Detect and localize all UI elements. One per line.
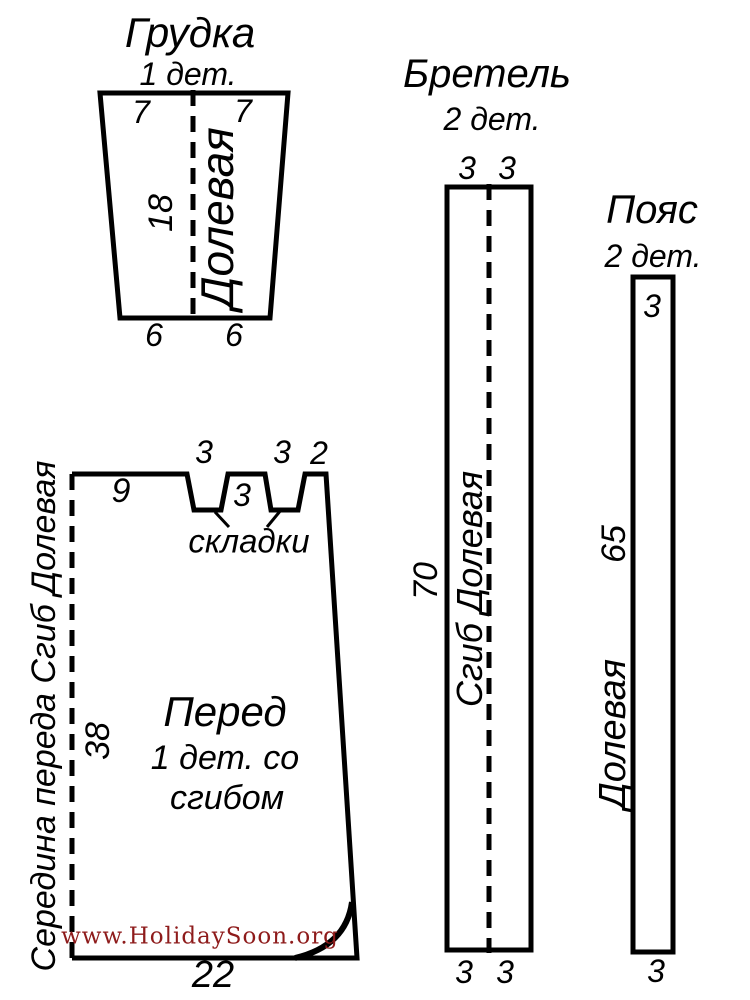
bretel-size-top-right: 3 [498, 152, 516, 184]
watermark: www.HolidaySoon.org [61, 926, 339, 949]
bretel-size-bottom-left: 3 [455, 956, 473, 988]
grudka-size-bottom-right: 6 [225, 319, 243, 351]
grudka-size-top-left: 7 [132, 96, 150, 128]
poyas-title: Пояс [606, 190, 698, 230]
bretel-size-length: 70 [409, 562, 443, 600]
poyas-size-bottom: 3 [647, 955, 665, 987]
poyas-size-length: 65 [597, 525, 631, 563]
grudka-size-height: 18 [144, 194, 178, 232]
bretel-size-bottom-right: 3 [496, 956, 514, 988]
grudka-size-top-right: 7 [234, 95, 252, 127]
pered-between-pleats-size: 3 [233, 479, 251, 511]
pered-count-line1: 1 дет. со [151, 741, 299, 775]
bretel-grainline-label: Сгиб Долевая [452, 471, 488, 707]
pered-pleat1-size: 3 [195, 436, 213, 468]
pered-size-top: 9 [112, 474, 131, 508]
grudka-size-bottom-left: 6 [145, 319, 163, 351]
pered-count-line2: сгибом [170, 781, 284, 815]
grudka-title: Грудка [125, 12, 255, 54]
grudka-count: 1 дет. [140, 58, 237, 90]
pered-fold-label: Середина переда Сгиб Долевая [27, 461, 61, 972]
pered-bottom-size: 22 [192, 956, 234, 994]
bretel-size-top-left: 3 [458, 152, 476, 184]
pered-side-size: 38 [81, 722, 115, 760]
sewing-pattern-diagram: Грудка 1 дет. 7 7 18 Долевая 6 6 Бретель… [0, 0, 750, 1000]
pered-corner-size: 2 [310, 437, 328, 469]
poyas-count: 2 дет. [605, 240, 702, 272]
grudka-grainline-label: Долевая [194, 127, 240, 309]
poyas-size-top: 3 [643, 290, 661, 322]
pered-pleat2-size: 3 [273, 436, 291, 468]
poyas-grainline-label: Долевая [594, 659, 632, 809]
bretel-count: 2 дет. [444, 103, 541, 135]
pered-pleats-label: складки [188, 525, 309, 558]
bretel-title: Бретель [403, 54, 571, 94]
poyas-outline [633, 277, 673, 952]
pered-title: Перед [163, 691, 286, 733]
